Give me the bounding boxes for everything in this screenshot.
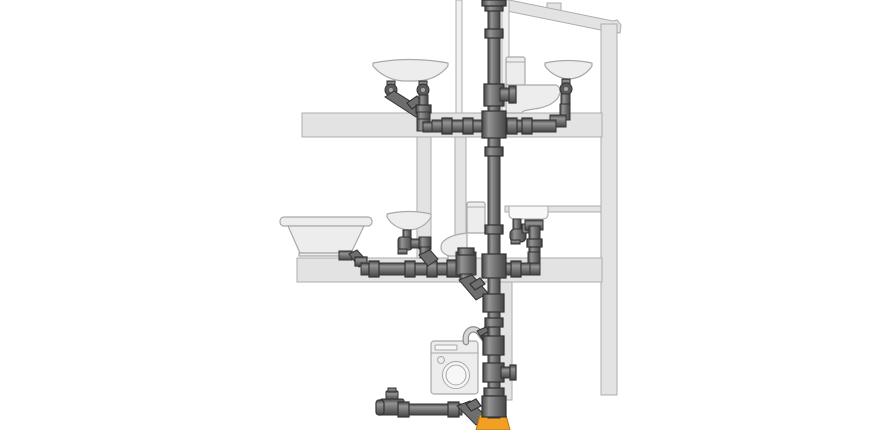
- plumbing-diagram-canvas: Drainage system cross-section of a build…: [0, 0, 870, 430]
- upper-junction-fitting: [482, 111, 506, 138]
- vent-collar: Roof vent collar: [482, 0, 506, 6]
- trap-cleanout-nut: [511, 240, 520, 244]
- bathtub-rim: [280, 217, 372, 226]
- trap-cleanout-nut: [398, 249, 407, 254]
- end-cap: [376, 400, 384, 415]
- kitchen-sink-basin: [509, 206, 548, 219]
- branch-pipe: [432, 120, 484, 132]
- washer-branch-fitting: Washing machine branch fitting: [483, 336, 504, 355]
- right-wall: Exterior wall: [601, 24, 617, 395]
- base-fitting: [482, 396, 506, 417]
- cleanout-branch: Cleanout access fitting: [483, 363, 516, 382]
- cleanout-cap: [510, 365, 516, 380]
- washing-machine: Washing machine: [431, 341, 478, 394]
- door-outer: [443, 362, 470, 389]
- bathtub-body: [288, 226, 364, 253]
- middle-junction-fitting: [482, 254, 506, 278]
- detergent-drawer: [435, 345, 457, 350]
- plumbing-diagram: Drainage system cross-section of a build…: [0, 0, 870, 430]
- attic-toilet-cistern: [506, 57, 525, 85]
- basin-trap: [398, 237, 412, 250]
- stack-body: [488, 5, 500, 418]
- attic-partition-wall: Attic partition wall: [456, 0, 462, 113]
- attic-toilet-branch: Attic toilet connection: [484, 84, 516, 106]
- merge-fitting: [483, 294, 504, 312]
